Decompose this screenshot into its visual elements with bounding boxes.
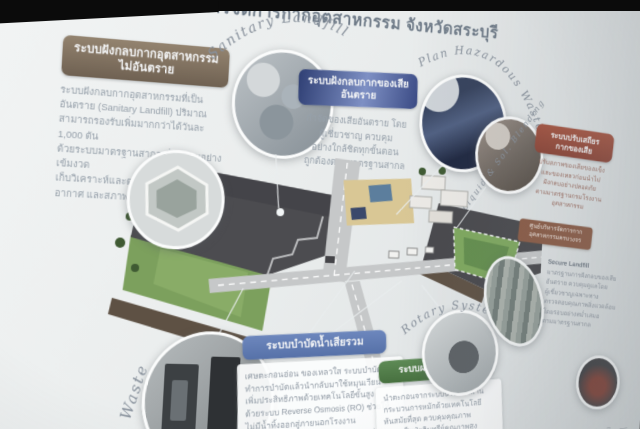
secure-landfill-note: Secure Landfill มาตรฐานการฝังกลบของเสีย …: [541, 258, 628, 334]
presentation-slide: การจัดการกากอุตสาหกรรม จังหวัดสระบุรี ระ…: [0, 0, 640, 429]
meeting-room-photo: การจัดการกากอุตสาหกรรม จังหวัดสระบุรี ระ…: [0, 0, 640, 429]
sanitary-label-text: Sanitary Landfill: [205, 2, 352, 74]
card-blending-header: ระบบปรับเสถียร กากของเสีย: [534, 123, 615, 163]
product-photo: [575, 355, 621, 410]
hexagon-cell-graphic: [127, 150, 224, 248]
presenter-toolbar[interactable]: ∧ ⌕ ○ ▭ ≡ — ∕: [549, 421, 640, 429]
sanitary-curved-label: Sanitary Landfill: [204, 0, 384, 81]
map-plaza-buildings: [341, 170, 468, 231]
svg-text:Sanitary Landfill: Sanitary Landfill: [205, 2, 352, 74]
card-wastewater-header: ระบบบำบัดน้ำเสียรวม: [242, 330, 386, 360]
projection-screen: การจัดการกากอุตสาหกรรม จังหวัดสระบุรี ระ…: [0, 0, 640, 429]
machine-panel: [206, 357, 240, 429]
card-hazardous-header: ระบบฝังกลบกากของเสีย อันตราย: [298, 69, 418, 109]
machine-window: [170, 380, 188, 421]
